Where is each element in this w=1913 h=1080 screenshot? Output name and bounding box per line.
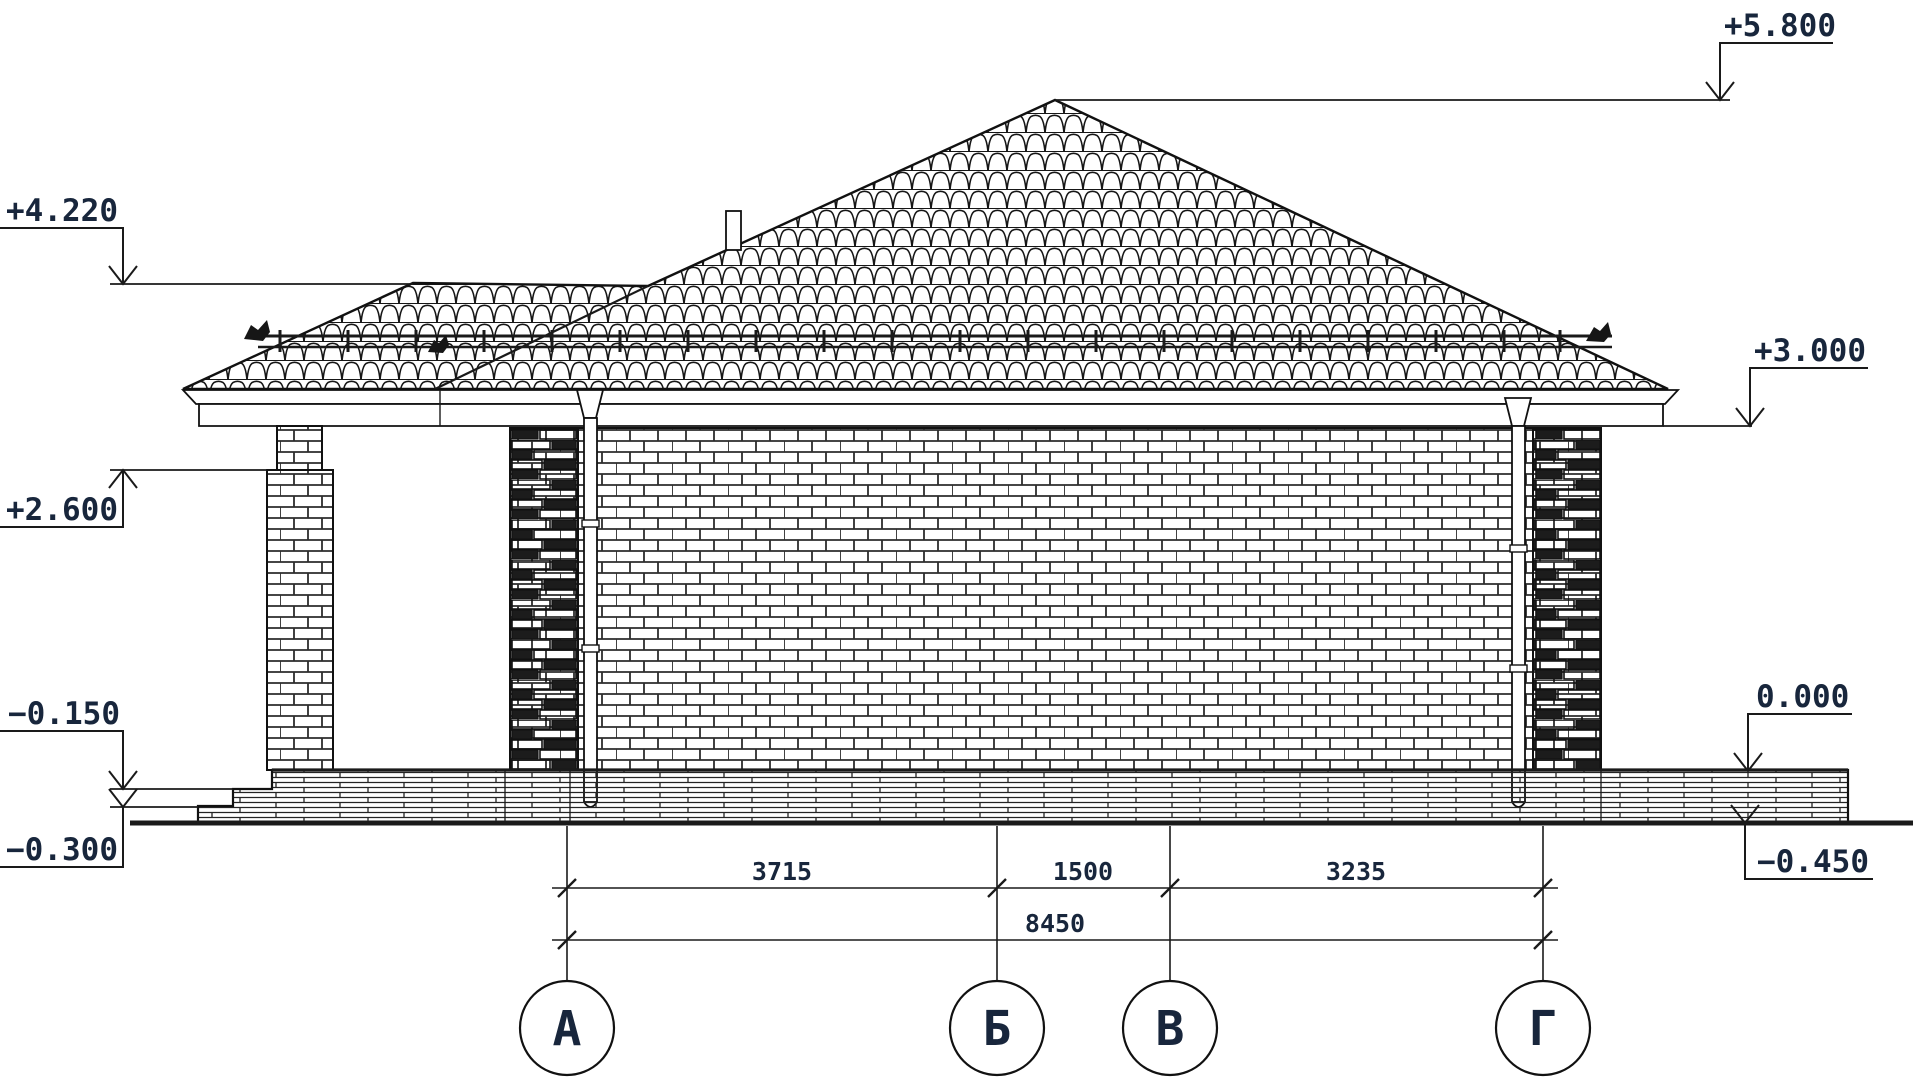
vent-pipe — [726, 211, 741, 250]
elevation-mark-porch-floor: −0.150 — [0, 696, 137, 789]
elevation-mark-porch-base: −0.300 — [0, 789, 137, 868]
axis-label-b: Б — [983, 1001, 1012, 1057]
elevation-mark-porch-beam: +2.600 — [0, 470, 267, 528]
corner-quoin-left — [510, 428, 578, 770]
facade-elevation-canvas: А Б В Г 3715 1500 3235 8450 +5.800 +4.22… — [0, 0, 1913, 1080]
svg-text:0.000: 0.000 — [1756, 679, 1849, 715]
roof — [183, 100, 1678, 426]
svg-text:−0.300: −0.300 — [6, 832, 118, 868]
axis-label-a: А — [553, 1001, 582, 1057]
elevation-mark-roof-peak: +5.800 — [1055, 8, 1836, 100]
elevation-mark-porch-ridge: +4.220 — [0, 193, 413, 284]
svg-text:−0.150: −0.150 — [8, 696, 120, 732]
fascia-board — [183, 390, 1678, 404]
base — [110, 770, 1913, 823]
porch-step-lines — [110, 789, 233, 807]
axis-lines — [567, 826, 1543, 981]
svg-text:+4.220: +4.220 — [6, 193, 118, 229]
svg-text:+3.000: +3.000 — [1754, 333, 1866, 369]
svg-text:+5.800: +5.800 — [1724, 8, 1836, 44]
dimension-span-b-v: 1500 — [1053, 857, 1113, 886]
elevation-drawing: А Б В Г 3715 1500 3235 8450 +5.800 +4.22… — [0, 0, 1913, 1080]
porch-column — [267, 426, 333, 770]
walls — [267, 390, 1601, 807]
main-wall-brick — [510, 428, 1601, 770]
dimensions: 3715 1500 3235 8450 — [552, 857, 1558, 940]
dimension-span-v-g: 3235 — [1326, 857, 1386, 886]
elevation-mark-eaves: +3.000 — [1663, 333, 1868, 426]
axis-label-g: Г — [1529, 1001, 1558, 1057]
axis-label-v: В — [1156, 1001, 1185, 1057]
roof-surface — [183, 100, 1668, 389]
elevation-mark-floor-zero: 0.000 — [1734, 679, 1852, 771]
dimension-total: 8450 — [1025, 909, 1085, 938]
svg-text:−0.450: −0.450 — [1757, 844, 1869, 880]
roof-ornament-bird-left — [244, 320, 270, 341]
corner-quoin-right — [1533, 428, 1601, 770]
svg-text:+2.600: +2.600 — [6, 492, 118, 528]
soffit — [199, 404, 1663, 426]
roof-ornament-bird-right — [1586, 322, 1611, 342]
dimension-span-a-b: 3715 — [752, 857, 812, 886]
